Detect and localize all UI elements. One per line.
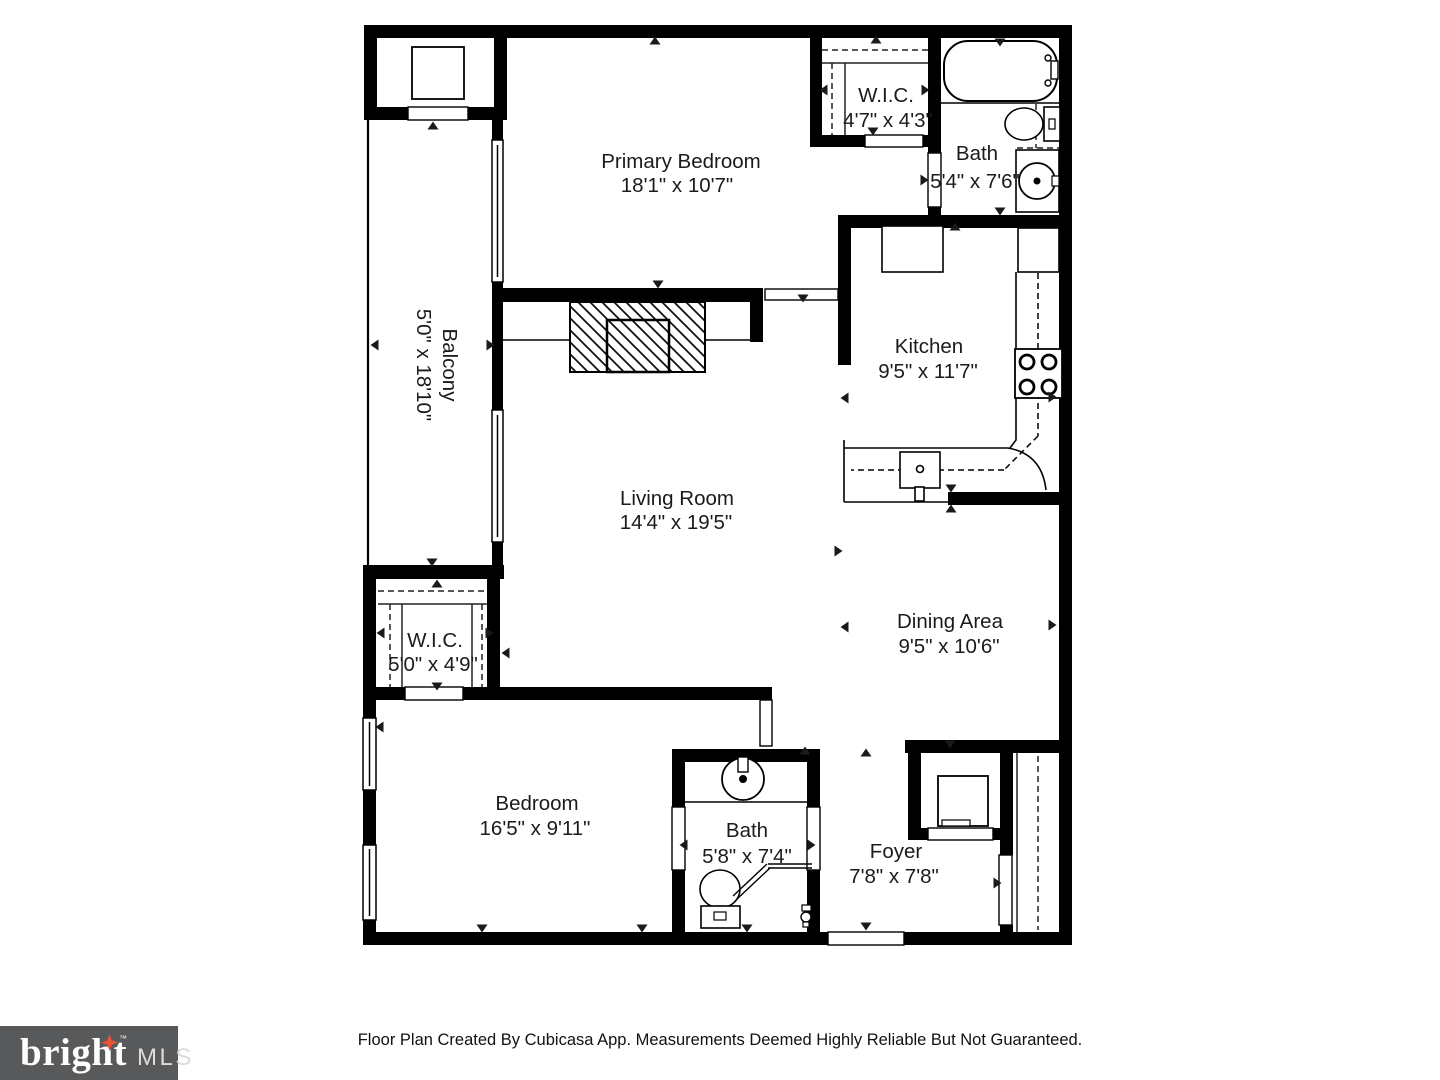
room-label-living-room: Living Room 14'4" x 19'5" (620, 487, 734, 534)
stove (1015, 349, 1062, 398)
bright-mls-logo: bright ™ MLS (0, 1026, 178, 1080)
svg-text:7'8" x 7'8": 7'8" x 7'8" (849, 865, 939, 888)
svg-text:Primary Bedroom: Primary Bedroom (601, 150, 761, 173)
svg-text:Bath: Bath (956, 142, 998, 165)
svg-text:Balcony: Balcony (438, 329, 461, 403)
logo-trademark: ™ (119, 1034, 127, 1043)
svg-text:W.I.C.: W.I.C. (858, 84, 914, 107)
svg-text:Bath: Bath (726, 819, 768, 842)
logo-suffix-text: MLS (137, 1044, 194, 1072)
svg-text:Kitchen: Kitchen (895, 335, 963, 358)
floor-plan-drawing: Primary Bedroom 18'1" x 10'7" W.I.C. 4'7… (0, 0, 1440, 1080)
fireplace-hatch (503, 302, 763, 372)
toilet-lower (700, 870, 740, 928)
room-label-bath-lower: Bath 5'8" x 7'4" (702, 819, 792, 868)
svg-text:5'4" x 7'6": 5'4" x 7'6" (930, 170, 1020, 193)
foyer-closet-appliance (938, 776, 988, 826)
shower-glass (733, 864, 812, 927)
svg-text:Foyer: Foyer (870, 840, 923, 863)
room-label-balcony: Balcony 5'0" x 18'10" (412, 309, 461, 421)
room-label-primary-bedroom: Primary Bedroom 18'1" x 10'7" (601, 150, 761, 197)
svg-text:W.I.C.: W.I.C. (407, 629, 463, 652)
svg-text:5'0" x 18'10": 5'0" x 18'10" (412, 309, 435, 421)
svg-text:14'4" x 19'5": 14'4" x 19'5" (620, 511, 732, 534)
floor-plan-page: Primary Bedroom 18'1" x 10'7" W.I.C. 4'7… (0, 0, 1440, 1080)
room-label-foyer: Foyer 7'8" x 7'8" (849, 840, 939, 888)
svg-text:9'5" x 10'6": 9'5" x 10'6" (898, 635, 999, 658)
svg-text:5'0" x 4'9": 5'0" x 4'9" (388, 653, 478, 676)
bath-lower-fixtures (685, 757, 812, 928)
room-label-kitchen: Kitchen 9'5" x 11'7" (878, 335, 978, 383)
room-label-dining-area: Dining Area 9'5" x 10'6" (897, 610, 1004, 658)
svg-text:4'7" x 4'3": 4'7" x 4'3" (843, 109, 933, 132)
room-label-bedroom: Bedroom 16'5" x 9'11" (480, 792, 591, 840)
svg-text:Bedroom: Bedroom (495, 792, 578, 815)
svg-text:9'5" x 11'7": 9'5" x 11'7" (878, 360, 978, 383)
sink-upper (1016, 150, 1059, 212)
svg-text:16'5" x 9'11": 16'5" x 9'11" (480, 817, 591, 840)
star-icon (101, 1034, 118, 1051)
refrigerator (882, 226, 943, 272)
svg-text:18'1" x 10'7": 18'1" x 10'7" (621, 174, 733, 197)
room-label-bath-upper: Bath 5'4" x 7'6" (930, 142, 1020, 193)
utility-appliance (412, 47, 464, 99)
bathtub (944, 41, 1058, 101)
kitchen-sink (900, 452, 940, 501)
windows (363, 140, 503, 920)
svg-text:Living Room: Living Room (620, 487, 734, 510)
toilet-upper (1005, 107, 1060, 141)
room-label-wic-upper: W.I.C. 4'7" x 4'3" (843, 84, 933, 132)
svg-text:Dining Area: Dining Area (897, 610, 1004, 633)
footer-credit: Floor Plan Created By Cubicasa App. Meas… (0, 1031, 1440, 1050)
sink-lower (722, 757, 764, 800)
svg-text:5'8" x 7'4": 5'8" x 7'4" (702, 845, 792, 868)
upper-cabinet (1018, 228, 1059, 272)
